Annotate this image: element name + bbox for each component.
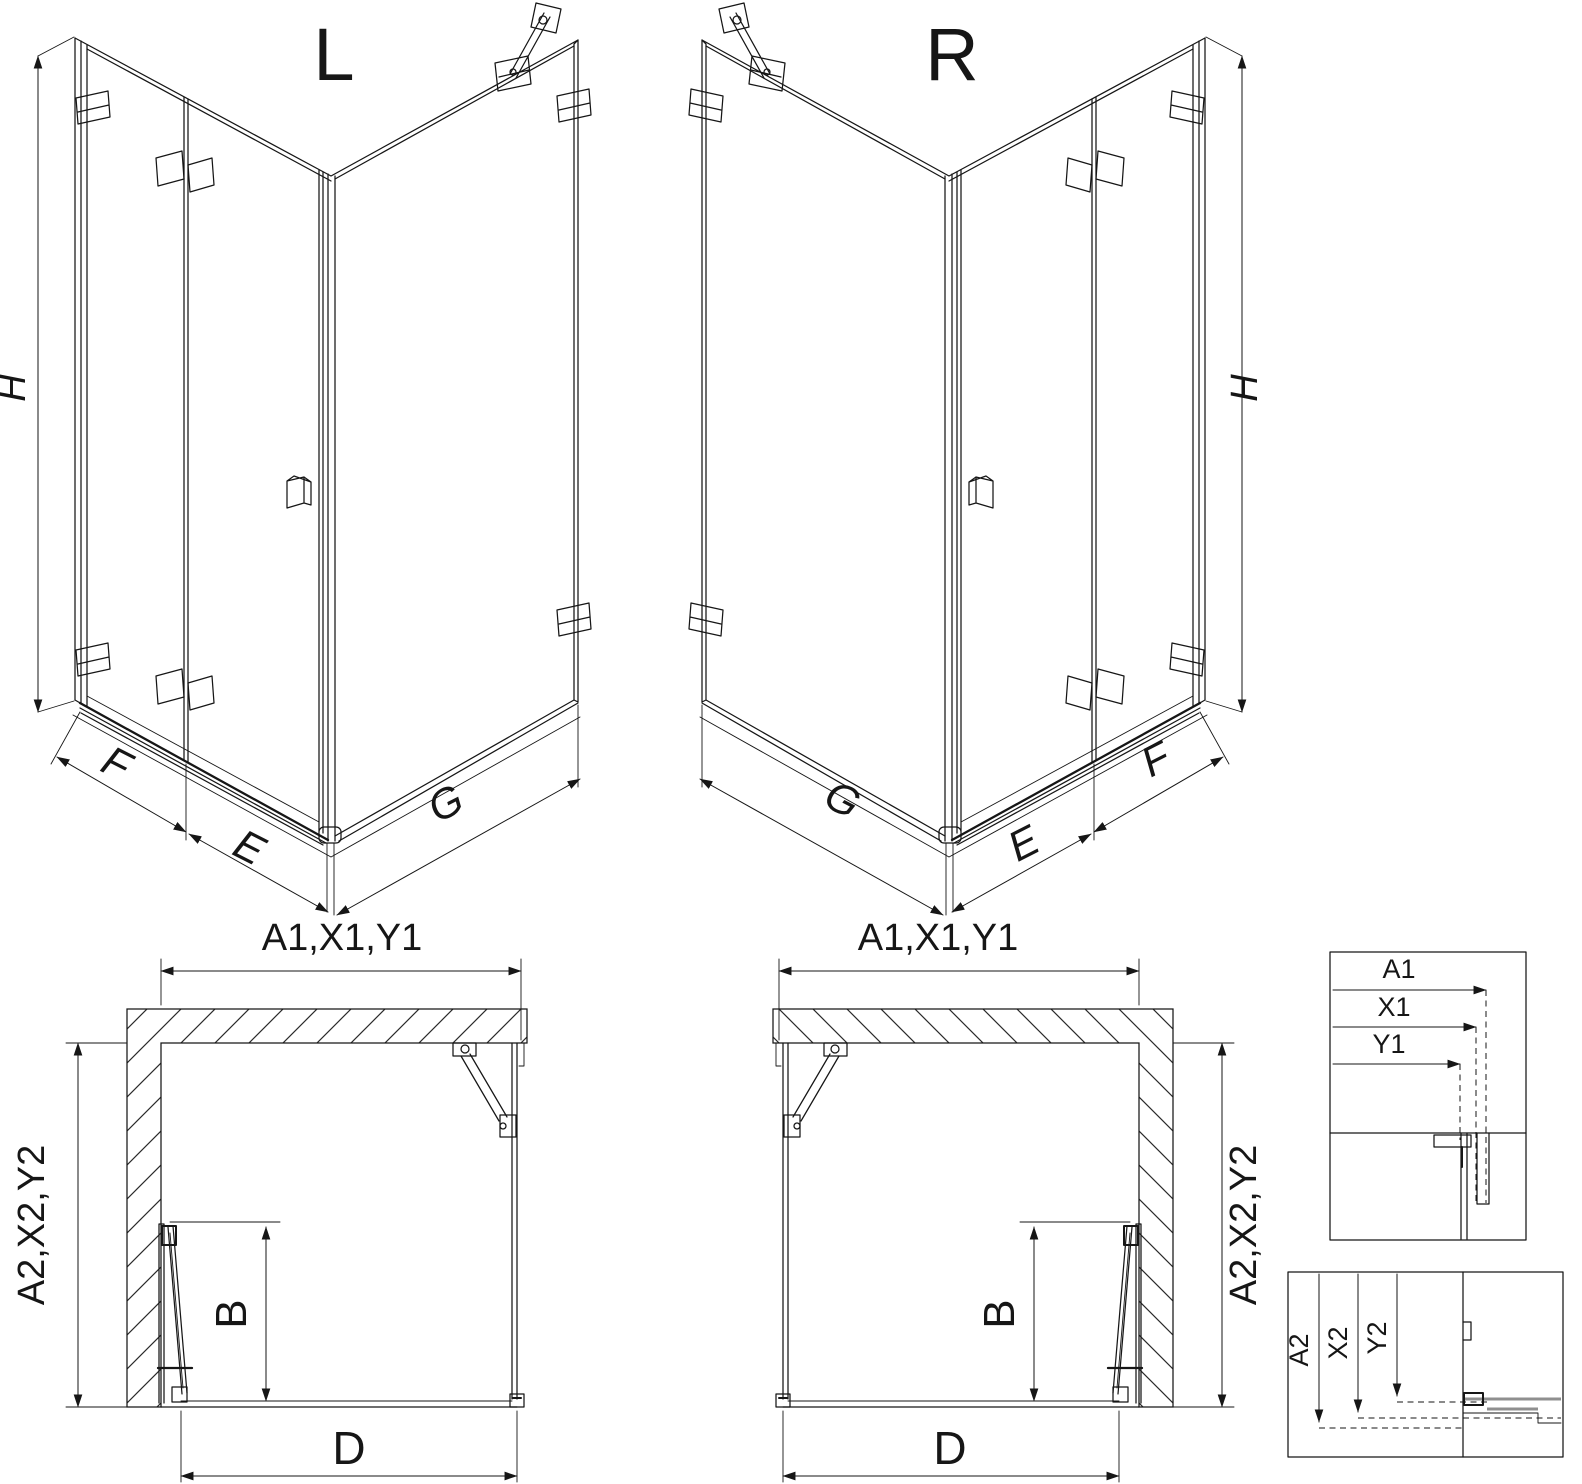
plan-view-left-labels: A1,X1,Y1 A2,X2,Y2 B D — [11, 917, 422, 1474]
detail-label-y2: Y2 — [1362, 1321, 1392, 1354]
dim-label-height-right: H — [1224, 374, 1266, 402]
dim-label-depth-left: A2,X2,Y2 — [11, 1145, 53, 1306]
dim-label-width-left: A1,X1,Y1 — [262, 917, 423, 959]
plan-view-right-labels: A1,X1,Y1 A2,X2,Y2 B D — [858, 917, 1265, 1474]
detail-profile-section-depth — [1463, 1322, 1561, 1423]
detail-profile-section-width — [1434, 1133, 1489, 1239]
technical-drawing-page: L H F E G R H G E F A1,X1,Y1 A2,X2,Y2 B … — [0, 0, 1582, 1484]
detail-box-width: A1 X1 Y1 — [1330, 952, 1526, 1240]
detail-label-a2: A2 — [1284, 1333, 1314, 1366]
dim-label-e-left: E — [226, 820, 273, 875]
variant-label-right: R — [925, 13, 978, 96]
detail-label-x1: X1 — [1377, 992, 1410, 1022]
detail-box-depth-border — [1288, 1272, 1563, 1457]
dim-label-door-left: B — [207, 1299, 256, 1328]
plan-view-left-linework — [66, 959, 527, 1482]
variant-label-left: L — [313, 13, 354, 96]
dim-label-entry-left: D — [332, 1422, 365, 1474]
plan-view-right-linework — [773, 959, 1234, 1482]
detail-box-width-border — [1330, 952, 1526, 1240]
shower-enclosure-drawing: L H F E G R H G E F A1,X1,Y1 A2,X2,Y2 B … — [0, 0, 1582, 1484]
dim-label-f-right: F — [1133, 731, 1179, 786]
detail-box-depth: A2 X2 Y2 — [1284, 1272, 1563, 1457]
detail-label-a1: A1 — [1382, 954, 1415, 984]
dim-label-depth-right: A2,X2,Y2 — [1223, 1145, 1265, 1306]
detail-label-x2: X2 — [1323, 1326, 1353, 1359]
dim-label-entry-right: D — [933, 1422, 966, 1474]
dim-label-width-right: A1,X1,Y1 — [858, 917, 1019, 959]
dim-label-door-right: B — [975, 1299, 1024, 1328]
detail-label-y1: Y1 — [1372, 1029, 1405, 1059]
dim-label-height-left: H — [0, 374, 34, 402]
dim-label-g-right: G — [817, 771, 867, 828]
